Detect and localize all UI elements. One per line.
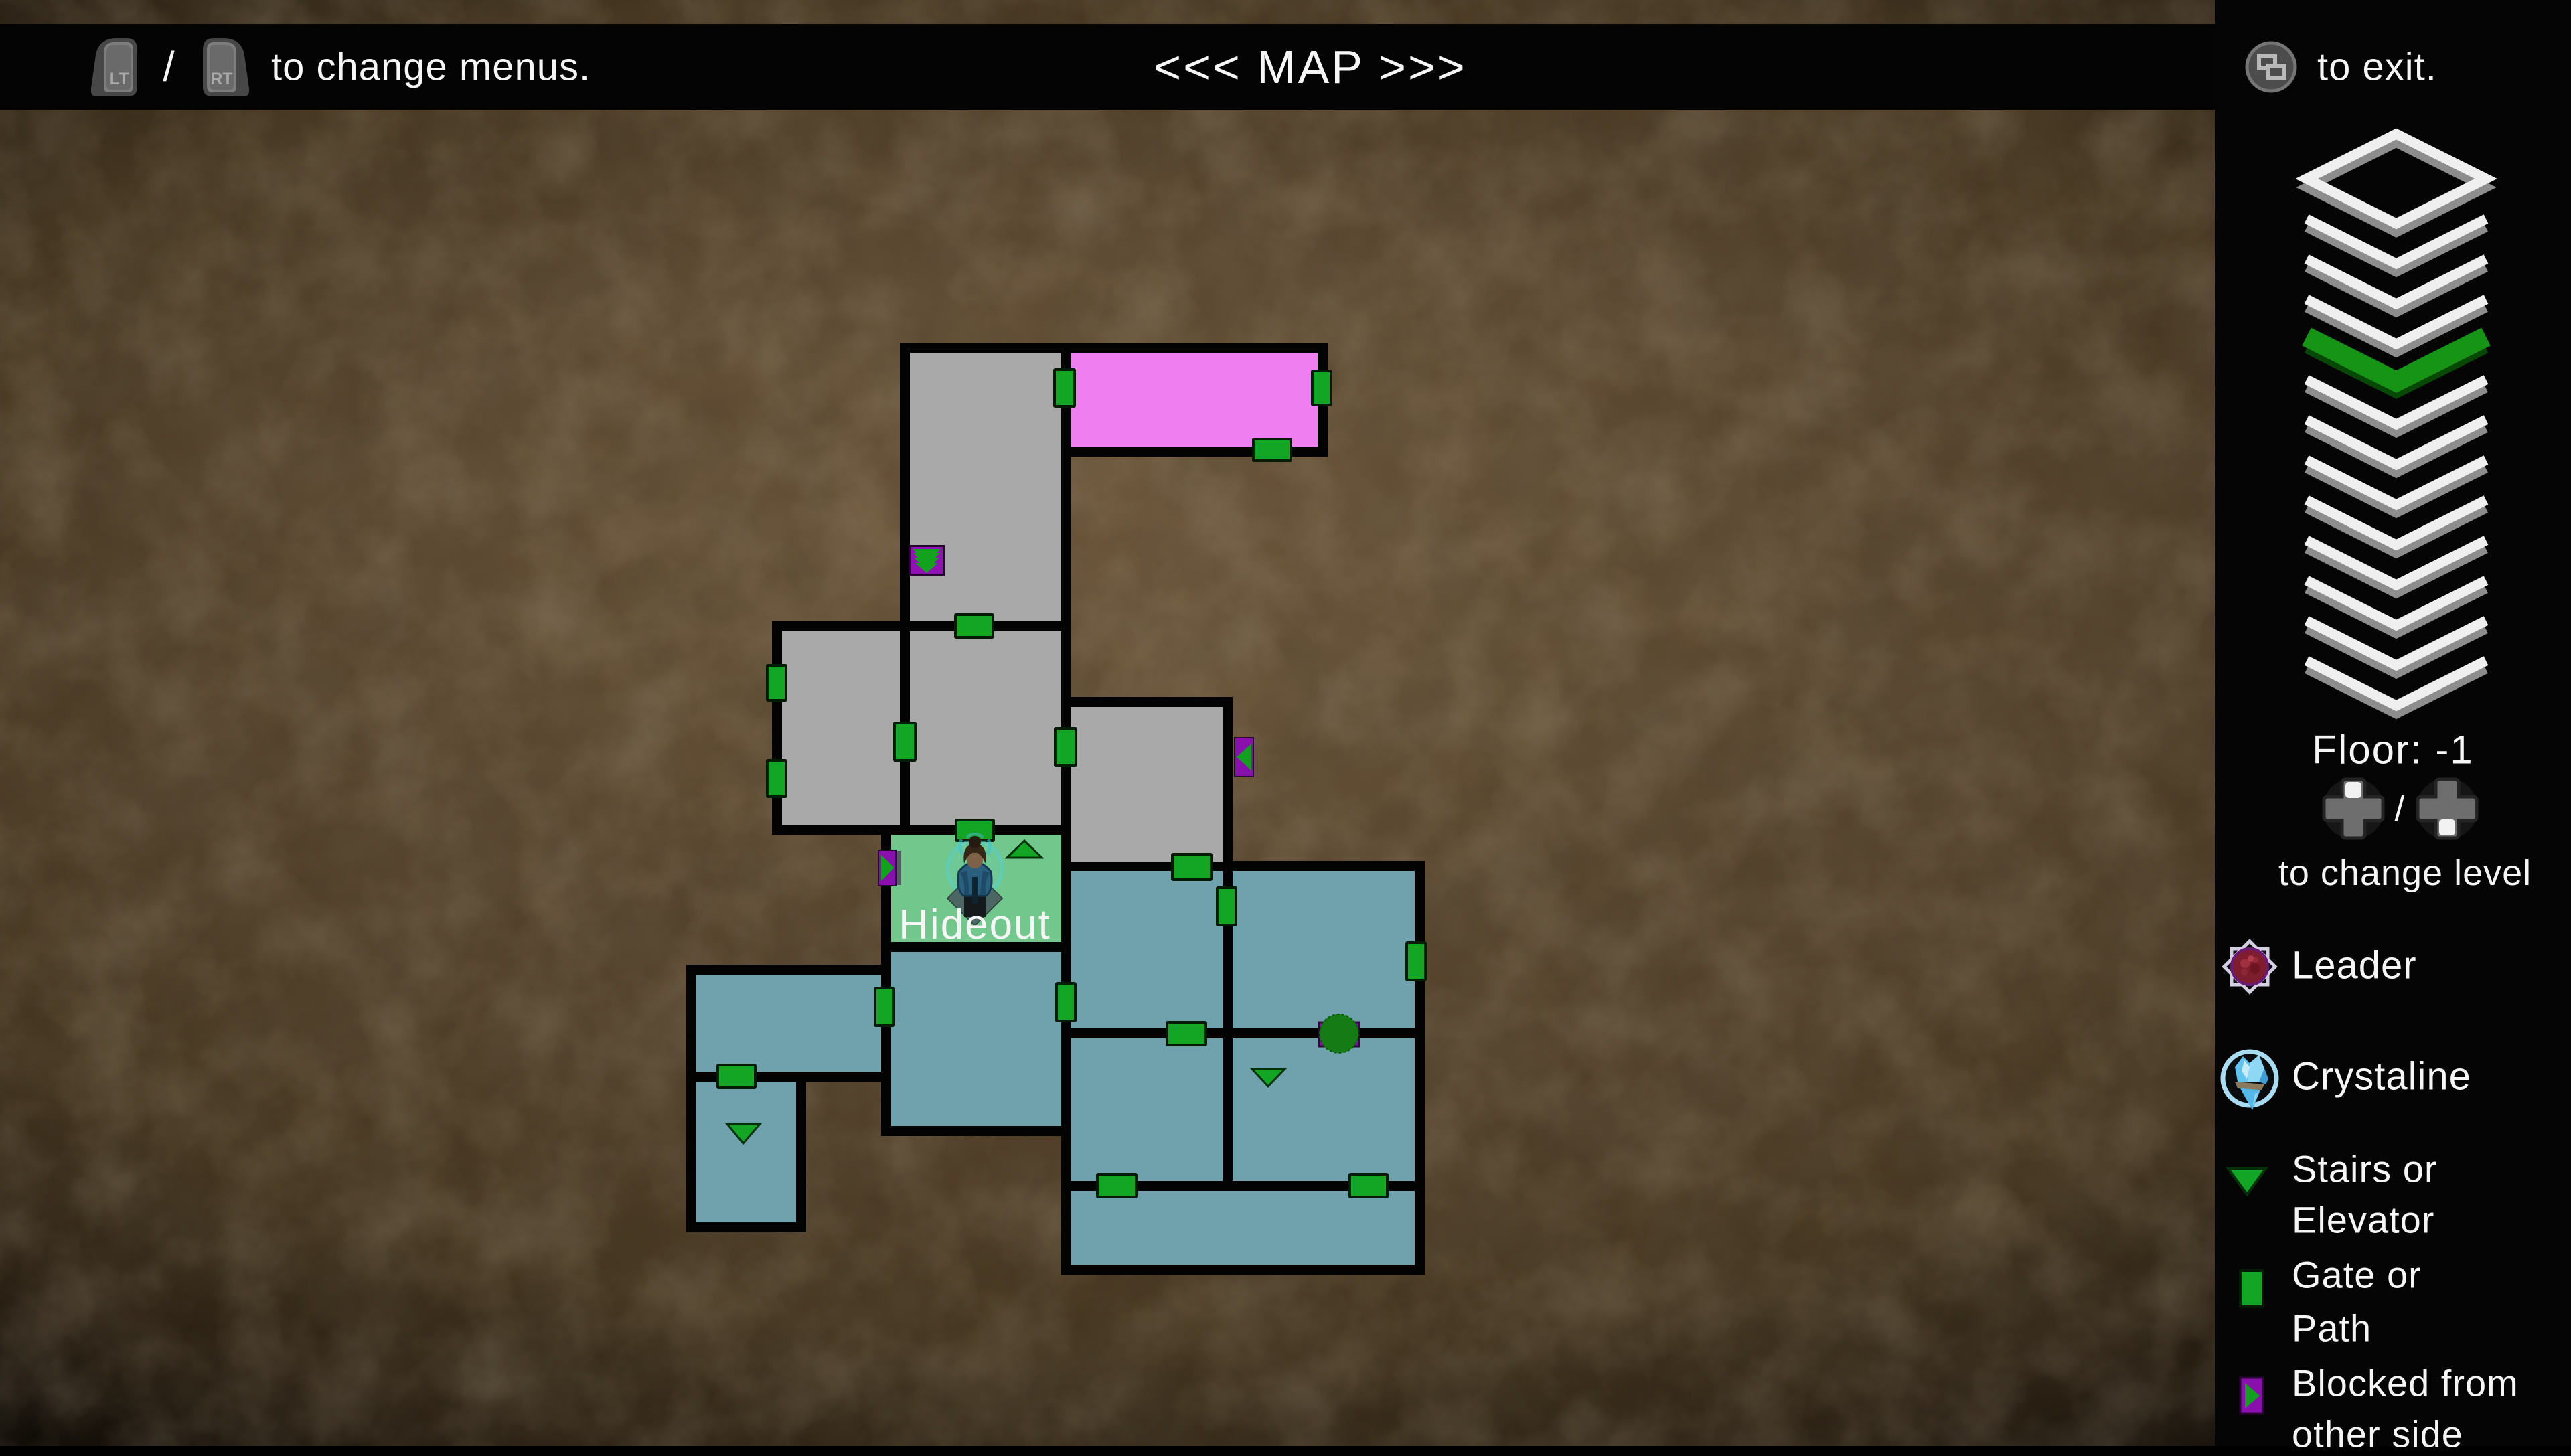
svg-text:LT: LT xyxy=(110,70,129,88)
svg-text:RT: RT xyxy=(210,70,232,88)
